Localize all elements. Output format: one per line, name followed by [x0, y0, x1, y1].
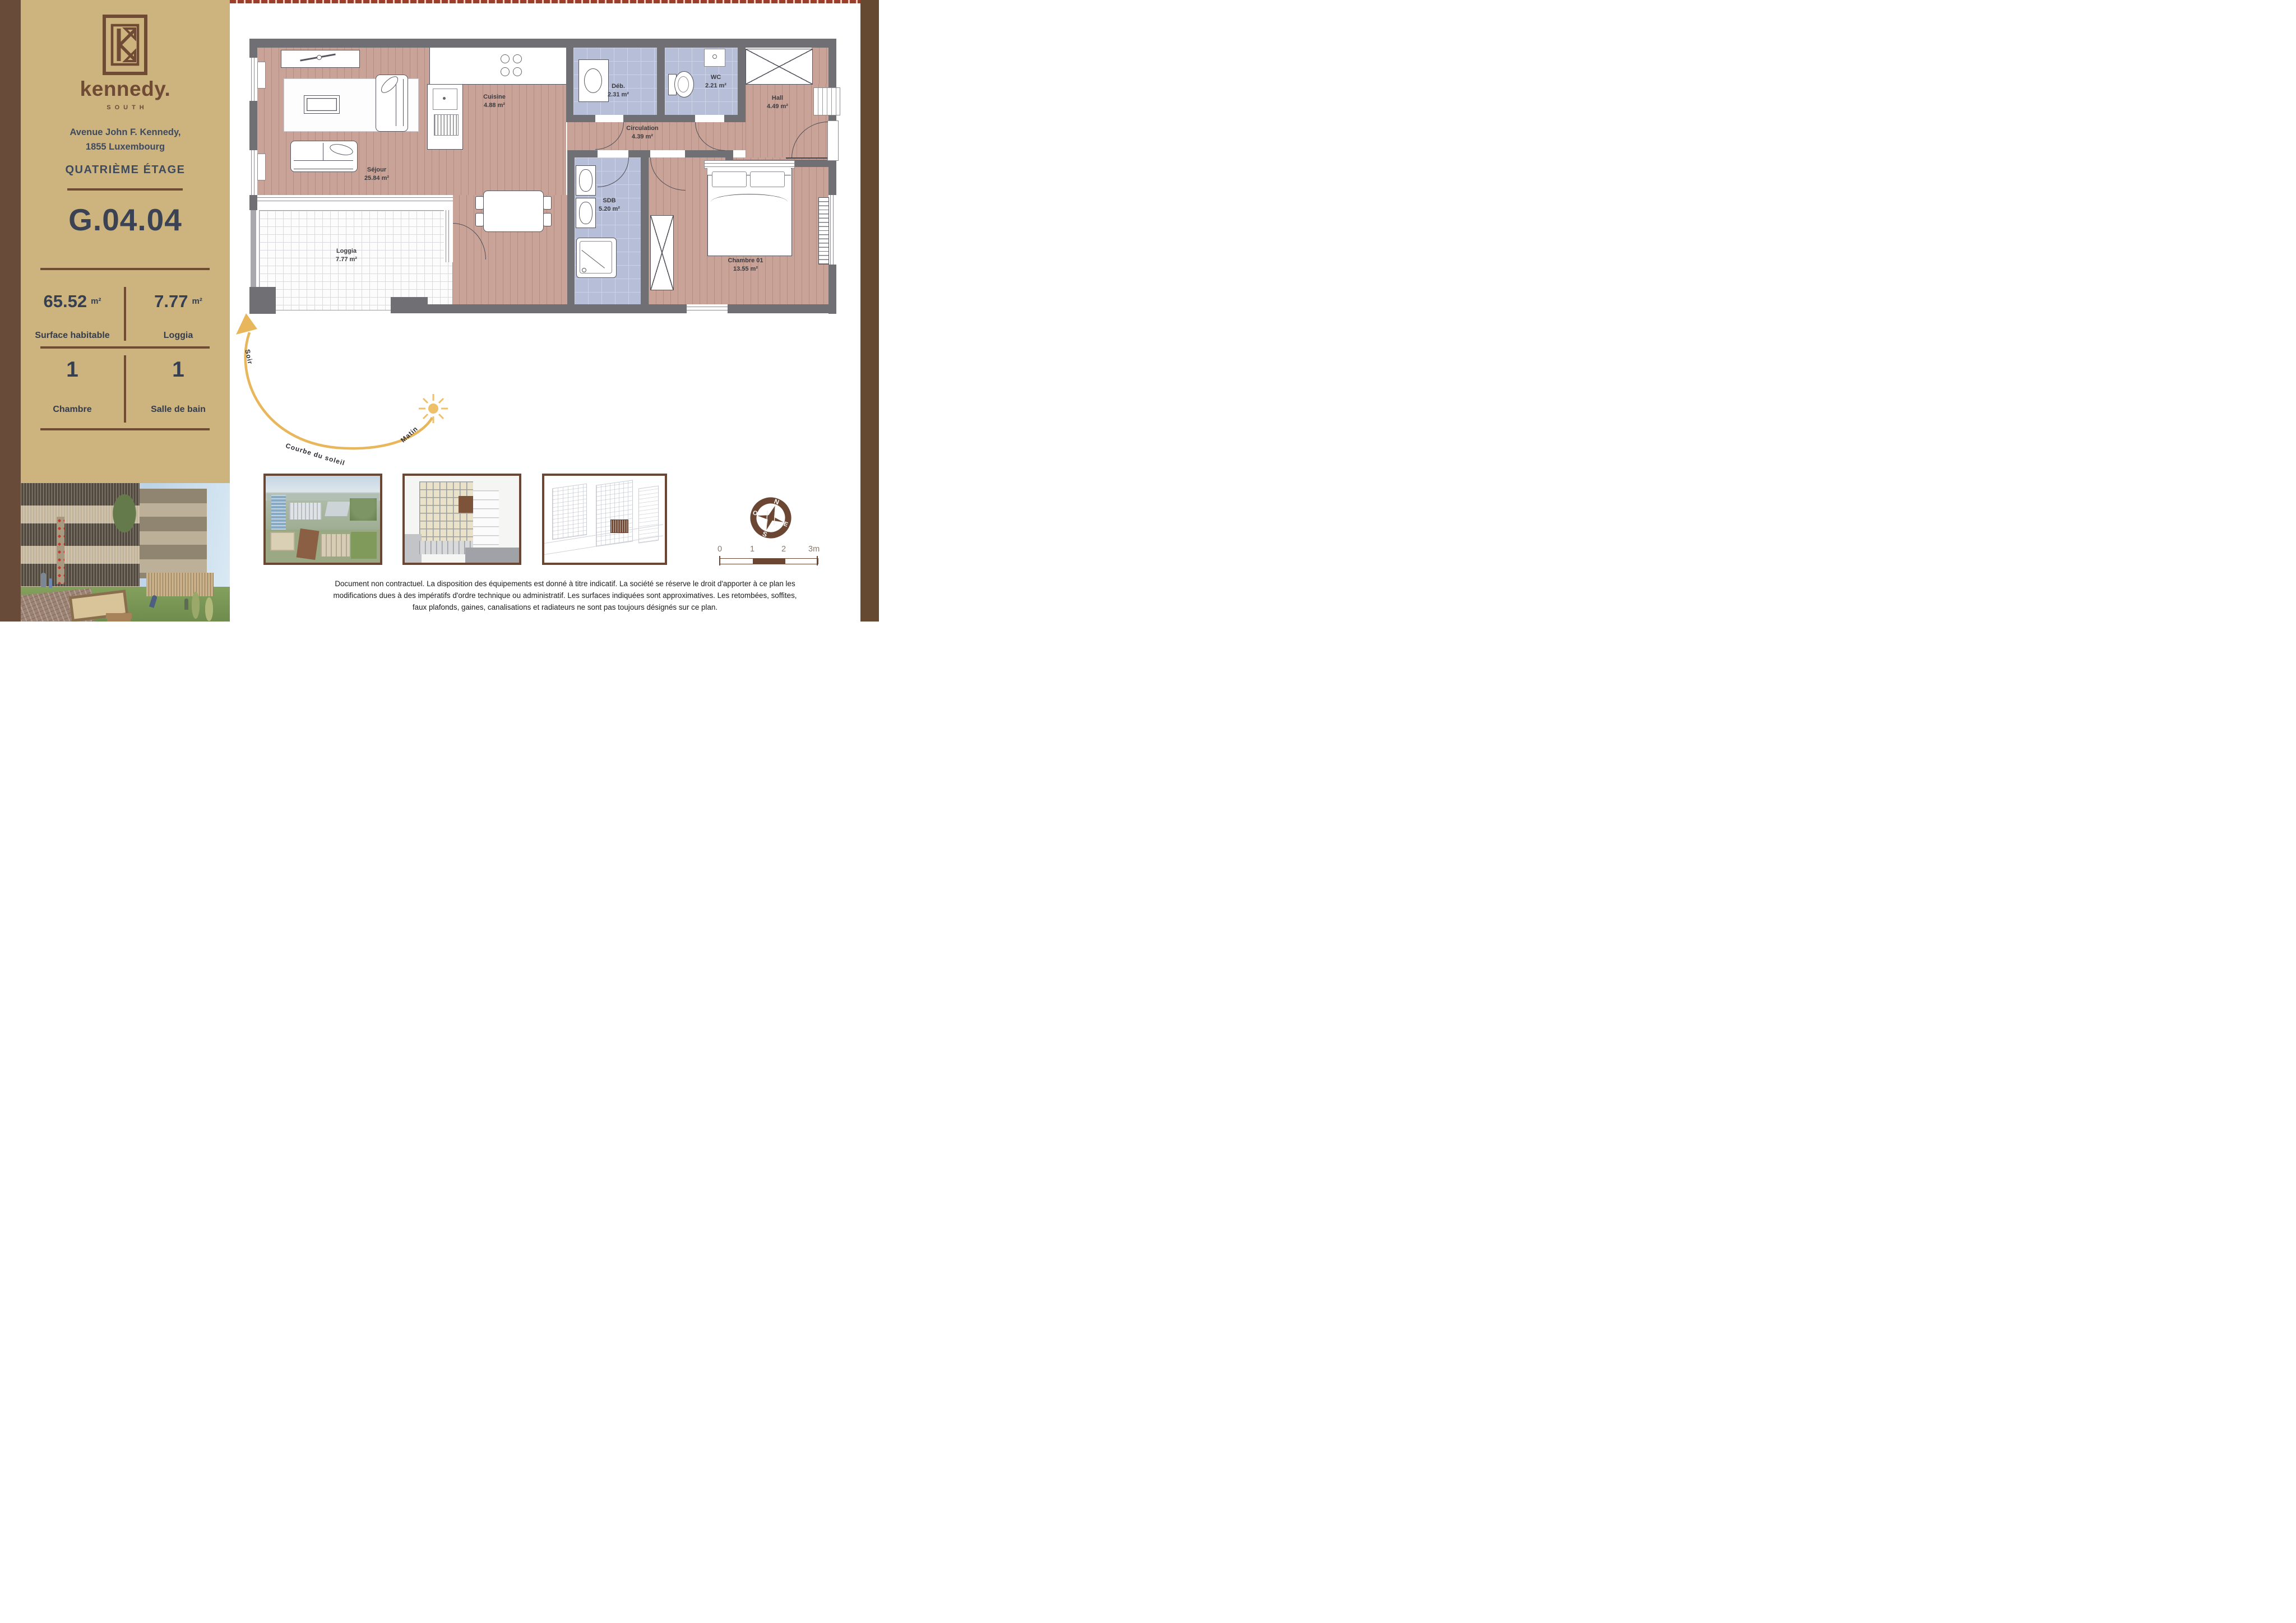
- stat-loggia-label: Loggia: [127, 331, 230, 341]
- dining-chair: [543, 213, 552, 226]
- door-gap-deb: [595, 115, 623, 122]
- curtain-box: [704, 160, 795, 169]
- shower-drain: [582, 268, 586, 272]
- siteplan-block: [552, 484, 587, 540]
- hob-burner: [501, 67, 510, 76]
- dining-chair: [543, 196, 552, 210]
- entry-radiator: [813, 87, 840, 115]
- hob-burner: [513, 67, 522, 76]
- stat-surface-value: 65.52: [44, 291, 87, 311]
- sink-drain: [443, 97, 446, 100]
- floor-hall-north: [812, 48, 828, 84]
- scale-tick-3m: 3m: [808, 545, 820, 554]
- address-line2: 1855 Luxembourg: [21, 140, 230, 155]
- disclaimer-line1: Document non contractuel. La disposition…: [296, 578, 834, 590]
- elevation-facade: [419, 481, 473, 548]
- wall-right: [828, 39, 836, 314]
- label-wc: WC2.21 m²: [705, 73, 726, 91]
- aerial-glass-tower: [271, 495, 286, 530]
- brand-name: kennedy.: [21, 77, 230, 101]
- wall-left: [249, 39, 257, 58]
- chambre-wardrobe: [650, 215, 674, 290]
- elevation-brown-panel: [459, 496, 474, 513]
- wall-left: [249, 101, 257, 150]
- siteplan-block: [638, 485, 659, 543]
- siteplan-highlighted-unit: [610, 520, 628, 533]
- armchair-back: [396, 79, 404, 126]
- elevation-ground: [465, 548, 519, 563]
- address: Avenue John F. Kennedy, 1855 Luxembourg: [21, 126, 230, 154]
- sejour-radiator: [257, 154, 266, 180]
- divider: [40, 428, 210, 430]
- stat-loggia-value: 7.77: [154, 291, 188, 311]
- label-loggia: Loggia7.77 m²: [336, 247, 357, 265]
- photo-picnic-table: [106, 613, 132, 619]
- wall-top: [249, 39, 836, 48]
- address-line1: Avenue John F. Kennedy,: [21, 126, 230, 140]
- chambre-radiator: [818, 197, 829, 265]
- stat-sdb-label: Salle de bain: [127, 405, 230, 415]
- disclaimer: Document non contractuel. La disposition…: [296, 578, 834, 613]
- bed-blanket-fold: [711, 194, 788, 210]
- stat-chambre-value: 1: [21, 358, 124, 382]
- thumbnail-aerial-photo: [263, 474, 382, 565]
- compass-icon: N E S O: [744, 491, 798, 545]
- aerial-building: [325, 502, 350, 516]
- aerial-brown-building: [297, 528, 320, 560]
- disclaimer-line2: modifications dues à des impératifs d'or…: [296, 590, 834, 602]
- toilet-seat: [678, 76, 689, 92]
- right-brown-strip: [860, 0, 879, 622]
- door-gap-wc: [695, 115, 724, 122]
- left-brown-strip: [0, 0, 21, 622]
- coffee-table: [304, 95, 340, 114]
- sdb-basin-1-bowl: [579, 169, 592, 192]
- stat-chambre-label: Chambre: [21, 405, 124, 415]
- scale-seg-white: [785, 559, 818, 564]
- stat-sdb-value: 1: [127, 358, 230, 382]
- wall-loggia-left: [251, 210, 256, 287]
- thumbnail-elevation: [402, 474, 521, 565]
- divider: [67, 188, 183, 191]
- sun-curve-icon: [233, 311, 457, 468]
- photo-person: [49, 578, 52, 588]
- brand-subtitle: SOUTH: [21, 104, 230, 111]
- scale-bar: [720, 558, 818, 564]
- washing-machine-door: [584, 68, 602, 93]
- wall-sdb-right: [641, 157, 649, 304]
- label-chambre: Chambre 0113.55 m²: [728, 257, 763, 274]
- wc-washbasin-drain: [712, 54, 717, 59]
- sdb-basin-2-bowl: [579, 202, 592, 224]
- wall-corner-stub: [249, 287, 276, 314]
- window-left-1: [249, 58, 257, 101]
- sofa-seam: [323, 143, 323, 161]
- wall-cuisine-deb: [566, 48, 573, 122]
- divider: [40, 346, 210, 349]
- photo-climbing-wall: [57, 517, 64, 584]
- scale-tick-1: 1: [750, 545, 754, 554]
- siteplan-block: [596, 480, 633, 546]
- window-right: [828, 195, 836, 265]
- wall-sdb-left: [567, 157, 575, 304]
- building-photo: [21, 483, 230, 622]
- kitchen-counter: [429, 48, 567, 85]
- wall-bottom: [428, 304, 836, 313]
- pillow: [750, 171, 785, 187]
- divider-vertical: [124, 355, 126, 423]
- scale-endcap: [817, 556, 818, 565]
- wall-deb-wc: [657, 48, 665, 115]
- hob-burner: [513, 54, 522, 63]
- unit-number: G.04.04: [21, 202, 230, 238]
- entrance-door-leaf: [786, 157, 827, 159]
- wall-circulation-south: [567, 150, 725, 157]
- thumbnail-site-plan: [542, 474, 667, 565]
- photo-facade-far: [140, 489, 207, 578]
- photo-grasses: [189, 582, 223, 621]
- label-hall: Hall4.49 m²: [767, 94, 788, 112]
- dining-chair: [475, 213, 484, 226]
- aerial-white-block: [289, 503, 322, 520]
- loggia-window-band: [257, 195, 453, 210]
- wall-left: [249, 195, 257, 210]
- divider-vertical: [124, 287, 126, 341]
- scale-tick-2: 2: [781, 545, 786, 554]
- wall-wc-hall: [738, 48, 746, 122]
- aerial-residence: [321, 534, 350, 557]
- decorative-top-strip: [230, 0, 860, 3]
- label-circulation: Circulation4.39 m²: [626, 124, 658, 142]
- entrance-door-gap: [827, 120, 839, 161]
- window-left-2: [249, 150, 257, 195]
- stat-surface: 65.52m²: [21, 291, 124, 312]
- label-sdb: SDB5.20 m²: [599, 197, 620, 214]
- brochure-page: kennedy. SOUTH Avenue John F. Kennedy, 1…: [0, 0, 879, 622]
- label-sejour: Séjour25.84 m²: [364, 166, 389, 183]
- stat-loggia-unit: m²: [192, 296, 202, 306]
- hall-wardrobe: [746, 49, 813, 85]
- sofa-back: [294, 160, 353, 169]
- aerial-gardens: [351, 532, 377, 559]
- label-cuisine: Cuisine4.88 m²: [483, 93, 506, 110]
- dining-table: [483, 191, 544, 232]
- photo-person: [41, 573, 46, 587]
- hob-burner: [501, 54, 510, 63]
- elevation-stepped-block: [473, 490, 499, 546]
- photo-person: [184, 599, 188, 610]
- tv-mount: [317, 55, 322, 60]
- door-gap-sdb: [598, 150, 628, 157]
- scale-tick-0: 0: [717, 545, 722, 554]
- photo-tree: [105, 483, 144, 550]
- scale-seg-white: [720, 559, 753, 564]
- pillow: [712, 171, 747, 187]
- stat-loggia: 7.77m²: [127, 291, 230, 312]
- loggia-door-band: [444, 210, 453, 262]
- scale-endcap: [719, 556, 720, 565]
- stat-surface-unit: m²: [91, 296, 101, 306]
- door-gap-chambre: [650, 150, 685, 157]
- label-deb: Déb.2.31 m²: [608, 82, 629, 100]
- stat-surface-label: Surface habitable: [21, 331, 124, 341]
- sejour-radiator: [257, 62, 266, 89]
- dining-chair: [475, 196, 484, 210]
- floor-title: QUATRIÈME ÉTAGE: [21, 164, 230, 177]
- window-bottom: [687, 304, 728, 313]
- aerial-residence: [270, 532, 295, 551]
- aerial-park: [350, 498, 377, 521]
- divider: [40, 268, 210, 270]
- kennedy-logo-icon: [103, 15, 147, 75]
- kitchen-oven-grill: [434, 114, 459, 136]
- scale-seg-brown: [753, 559, 785, 564]
- disclaimer-line3: faux plafonds, gaines, canalisations et …: [296, 602, 834, 614]
